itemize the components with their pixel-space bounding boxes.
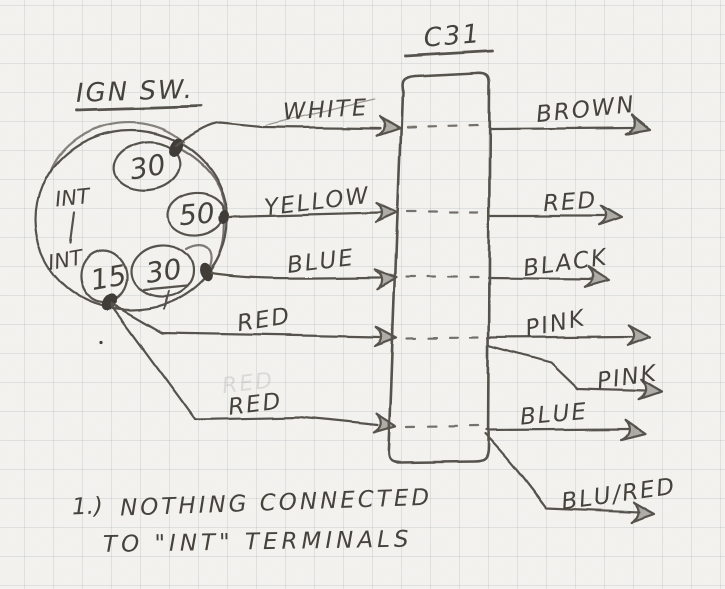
terminal-15-label: 15: [88, 258, 129, 297]
note-line-2: TO "INT" TERMINALS: [103, 527, 413, 558]
graph-paper: IGN SW. C31 INT INT 30 50 30 15 WHITE YE…: [0, 0, 725, 589]
wire-blue-right-path: [486, 429, 628, 430]
terminal-30-bottom-label: 30: [144, 252, 184, 290]
stray-dot: [100, 341, 103, 344]
terminal-50-label: 50: [178, 196, 216, 232]
connector-label: C31: [423, 19, 483, 54]
terminal-30-top-label: 30: [127, 148, 168, 187]
wire-pink1-path: [488, 337, 632, 338]
note-number: 1.): [72, 493, 104, 520]
wire-red-right-label: RED: [542, 187, 598, 217]
switch-title: IGN SW.: [75, 75, 194, 109]
wire-brown-path: [491, 128, 634, 129]
wiring-diagram: IGN SW. C31 INT INT 30 50 30 15 WHITE YE…: [0, 0, 725, 589]
wire-white-label: WHITE: [282, 95, 369, 125]
int-top-label: INT: [54, 184, 93, 212]
